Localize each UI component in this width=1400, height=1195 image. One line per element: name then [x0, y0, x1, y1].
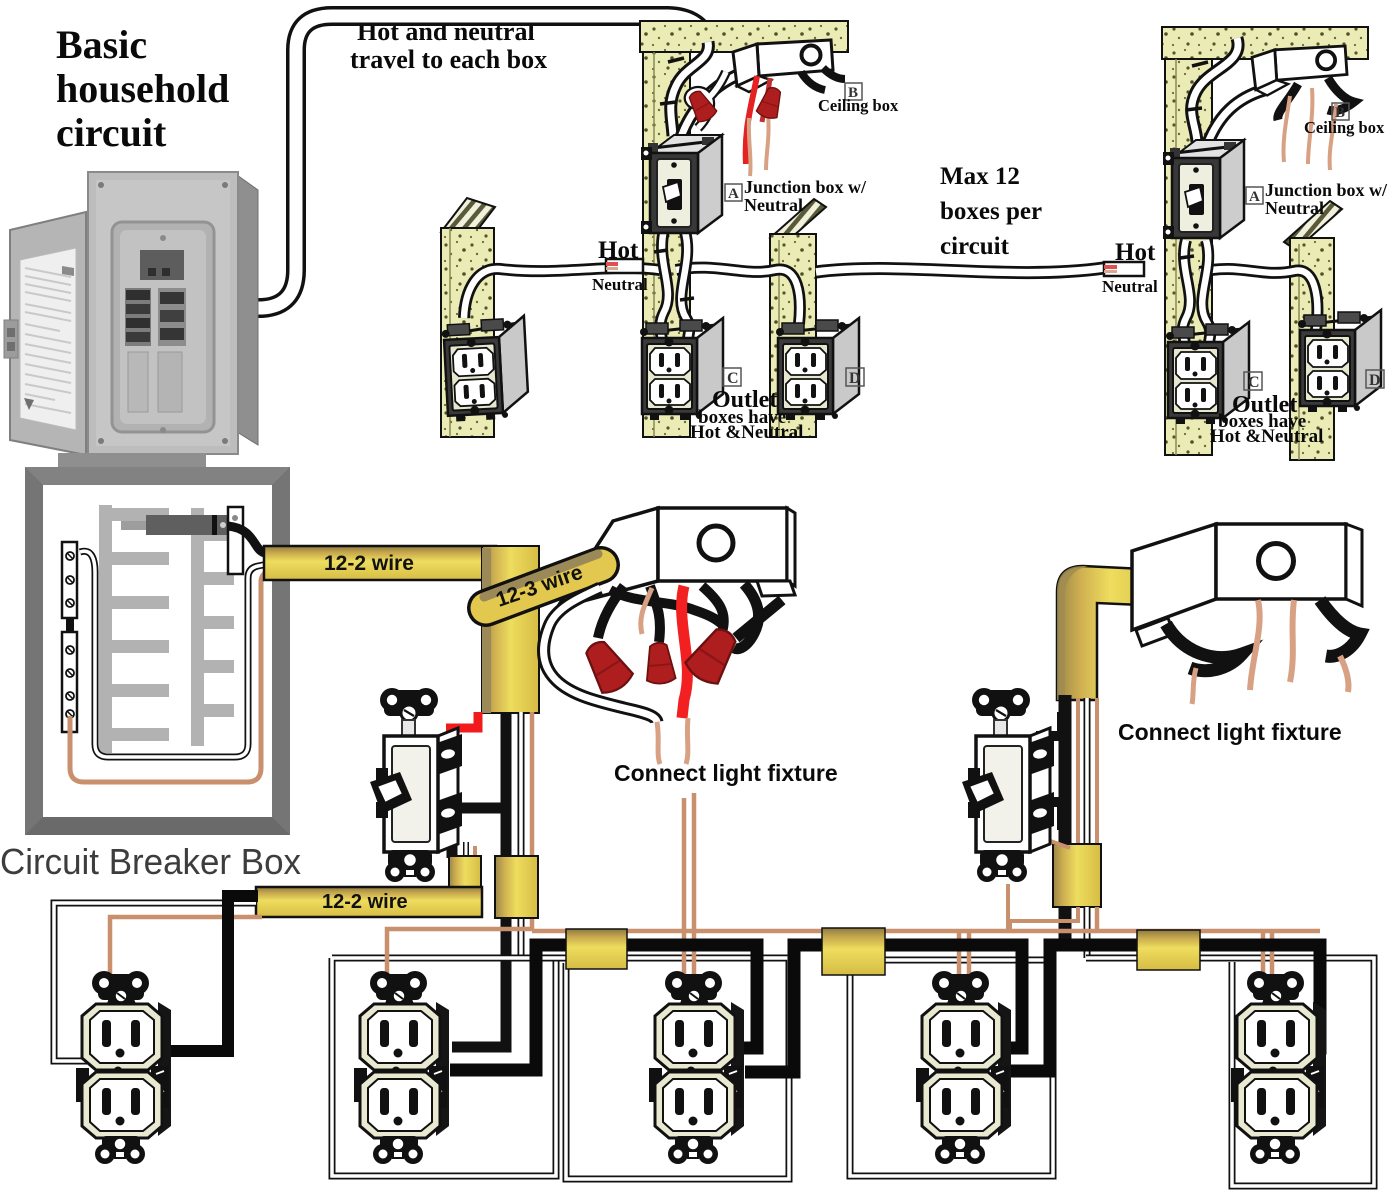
svg-text:Neutral: Neutral: [1102, 277, 1158, 296]
svg-text:Neutral: Neutral: [1265, 198, 1324, 218]
svg-text:Circuit Breaker Box: Circuit Breaker Box: [0, 841, 301, 882]
svg-text:circuit: circuit: [56, 110, 167, 155]
svg-text:A: A: [1249, 189, 1260, 205]
svg-text:Ceiling box: Ceiling box: [1304, 118, 1385, 137]
svg-text:Neutral: Neutral: [744, 195, 803, 215]
svg-text:Hot &Neutral: Hot &Neutral: [690, 422, 803, 443]
svg-text:C: C: [727, 370, 739, 387]
svg-text:Connect light fixture: Connect light fixture: [1118, 719, 1342, 745]
svg-text:Ceiling box: Ceiling box: [818, 96, 899, 115]
svg-text:Junction box w/: Junction box w/: [744, 177, 867, 197]
svg-text:C: C: [1248, 374, 1260, 391]
svg-text:D: D: [849, 370, 861, 387]
svg-text:Max 12: Max 12: [940, 163, 1020, 190]
svg-text:travel to each box: travel to each box: [350, 45, 547, 74]
svg-text:Hot: Hot: [1115, 239, 1156, 266]
svg-text:Hot &Neutral: Hot &Neutral: [1210, 426, 1323, 447]
svg-text:household: household: [56, 66, 229, 111]
svg-text:A: A: [728, 186, 739, 202]
svg-text:Connect light fixture: Connect light fixture: [614, 760, 838, 786]
svg-text:12-2 wire: 12-2 wire: [322, 891, 408, 913]
svg-text:Hot: Hot: [598, 237, 639, 264]
svg-text:Junction box w/: Junction box w/: [1265, 180, 1388, 200]
svg-text:boxes per: boxes per: [940, 198, 1042, 225]
svg-text:Basic: Basic: [56, 22, 147, 67]
svg-text:circuit: circuit: [940, 233, 1010, 260]
svg-text:Neutral: Neutral: [592, 275, 648, 294]
svg-text:12-2 wire: 12-2 wire: [324, 552, 414, 575]
svg-text:D: D: [1369, 372, 1381, 389]
